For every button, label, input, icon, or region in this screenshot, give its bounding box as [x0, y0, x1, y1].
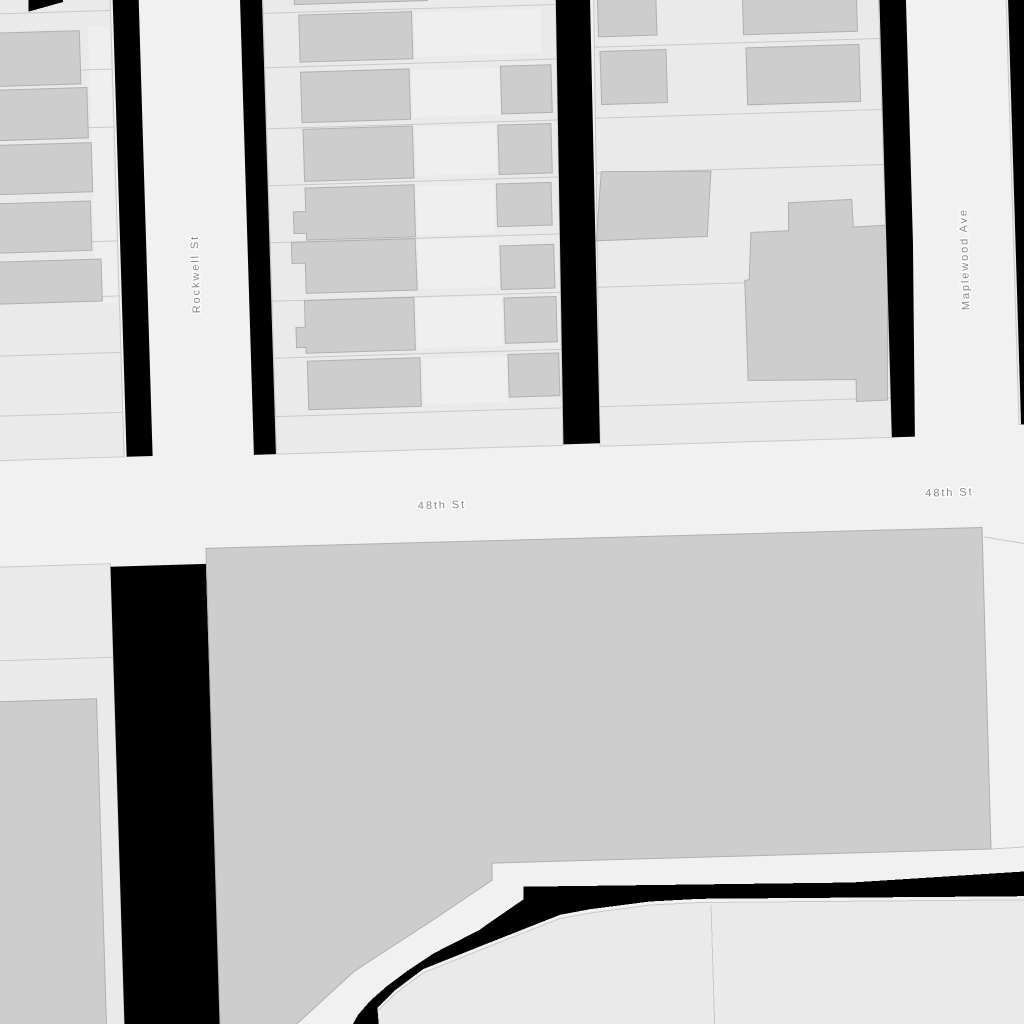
svg-text:48th St: 48th St — [925, 486, 974, 499]
svg-text:48th St: 48th St — [418, 499, 467, 512]
svg-text:Rockwell St: Rockwell St — [189, 235, 203, 314]
